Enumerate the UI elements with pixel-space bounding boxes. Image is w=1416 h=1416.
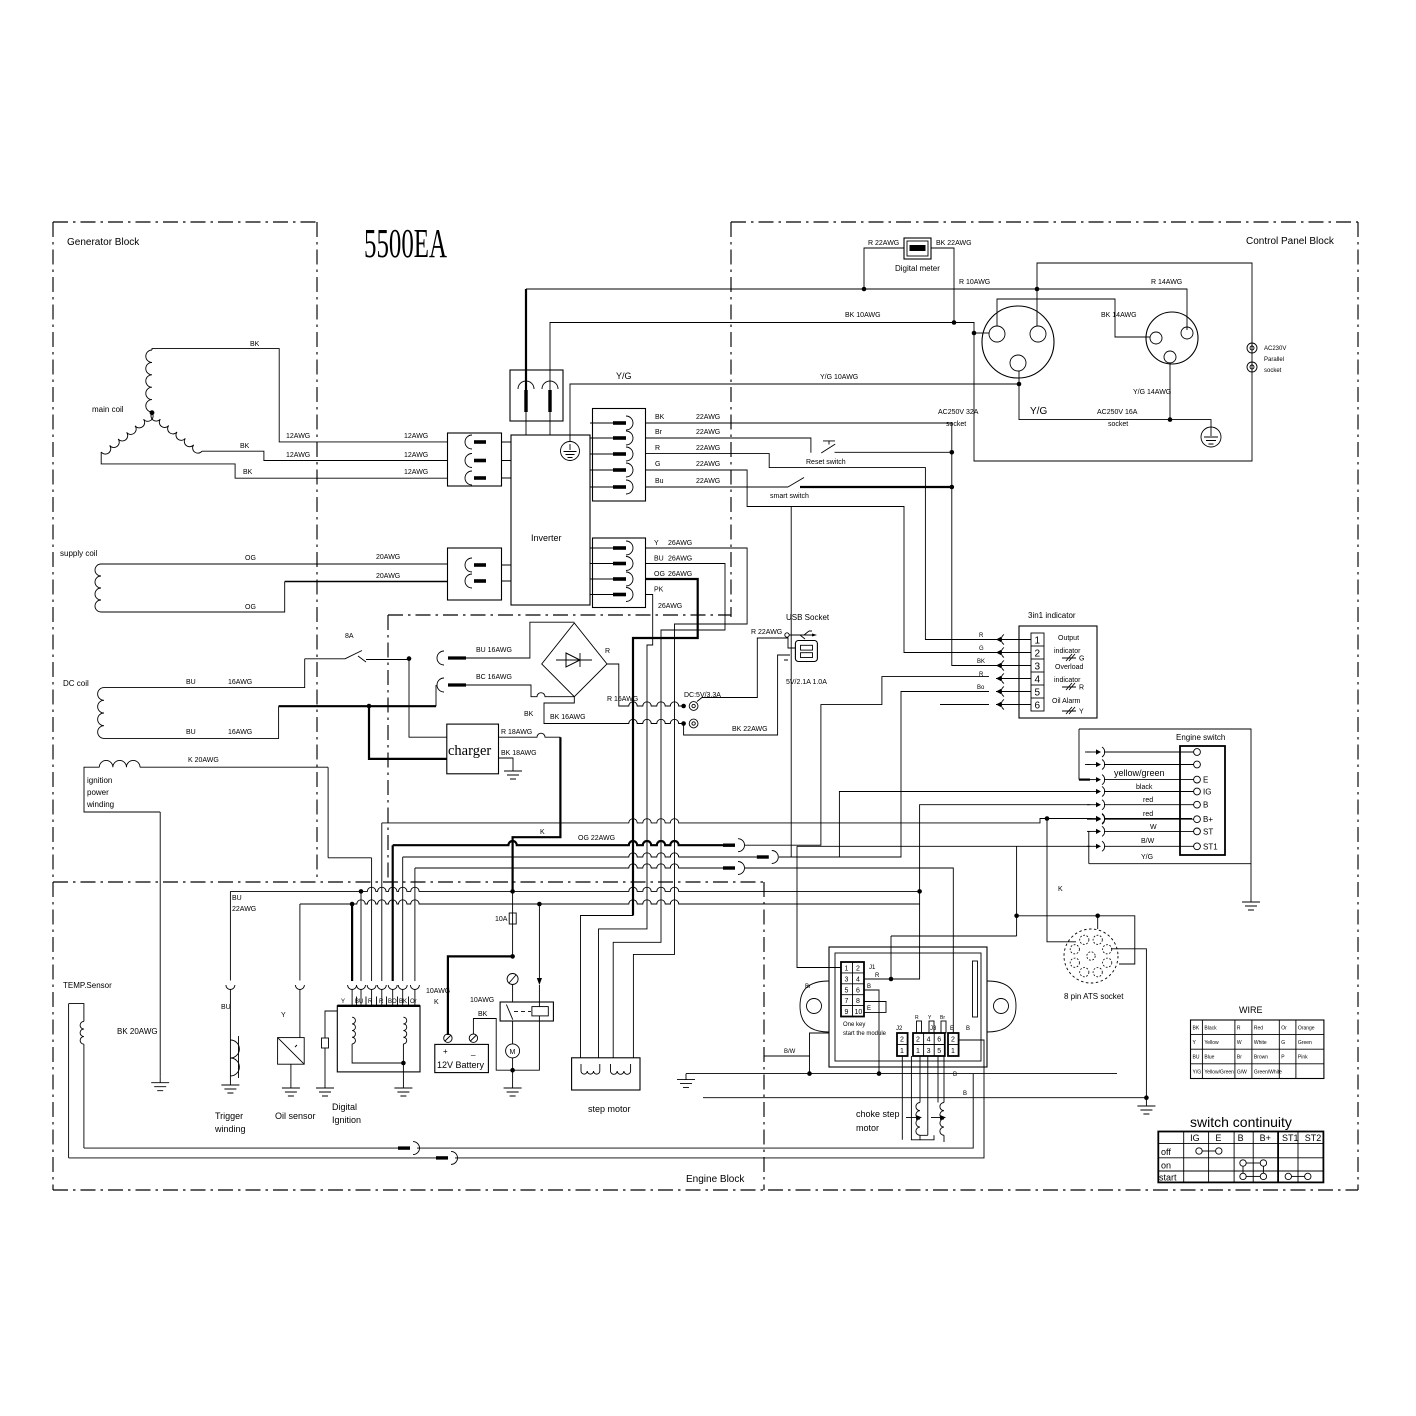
- svg-text:indicator: indicator: [1054, 648, 1081, 655]
- svg-text:R: R: [1237, 1026, 1241, 1032]
- svg-text:Bo: Bo: [977, 685, 985, 691]
- svg-text:R: R: [379, 999, 384, 1005]
- svg-text:Yellow: Yellow: [1204, 1040, 1219, 1046]
- svg-text:motor: motor: [856, 1123, 879, 1133]
- svg-text:BK: BK: [478, 1011, 488, 1018]
- svg-text:Reset switch: Reset switch: [806, 459, 846, 466]
- svg-text:BO: BO: [388, 999, 397, 1005]
- svg-text:BU: BU: [186, 679, 196, 686]
- svg-text:G: G: [1281, 1040, 1285, 1046]
- svg-text:Y: Y: [654, 540, 659, 547]
- svg-text:One key: One key: [843, 1022, 865, 1028]
- svg-text:BU: BU: [221, 1004, 231, 1011]
- svg-text:B+: B+: [1203, 815, 1213, 824]
- svg-text:Y/G: Y/G: [1030, 406, 1047, 417]
- svg-text:20AWG: 20AWG: [376, 573, 400, 580]
- svg-text:AC230V: AC230V: [1264, 346, 1286, 352]
- svg-text:_: _: [470, 1047, 476, 1056]
- svg-text:smart switch: smart switch: [770, 493, 809, 500]
- svg-text:PK: PK: [654, 587, 664, 594]
- svg-text:W: W: [1237, 1040, 1242, 1046]
- svg-text:Y: Y: [1079, 709, 1084, 716]
- svg-text:BK: BK: [524, 711, 534, 718]
- svg-text:Y/G: Y/G: [1141, 854, 1153, 861]
- svg-text:B: B: [867, 984, 871, 990]
- svg-text:winding: winding: [86, 800, 114, 809]
- svg-text:Engine switch: Engine switch: [1176, 733, 1225, 742]
- svg-text:3in1 indicator: 3in1 indicator: [1028, 611, 1076, 620]
- svg-text:BC 16AWG: BC 16AWG: [476, 674, 512, 681]
- svg-text:6: 6: [1035, 701, 1041, 712]
- svg-text:R: R: [1079, 685, 1084, 692]
- svg-text:B: B: [963, 1091, 967, 1097]
- svg-text:16AWG: 16AWG: [228, 729, 252, 736]
- svg-text:Bu: Bu: [655, 478, 664, 485]
- svg-text:Br: Br: [1237, 1055, 1242, 1061]
- svg-text:B: B: [1203, 801, 1208, 810]
- svg-text:12V Battery: 12V Battery: [437, 1060, 485, 1070]
- svg-text:BU: BU: [232, 895, 242, 902]
- svg-text:Br: Br: [940, 1015, 945, 1021]
- svg-text:E: E: [867, 1006, 871, 1012]
- svg-text:socket: socket: [946, 421, 966, 428]
- svg-text:G: G: [1079, 656, 1084, 663]
- svg-text:Y/G 14AWG: Y/G 14AWG: [1133, 389, 1171, 396]
- svg-text:12AWG: 12AWG: [404, 452, 428, 459]
- svg-text:M: M: [510, 1049, 516, 1056]
- svg-text:Black: Black: [1204, 1026, 1217, 1032]
- svg-text:E: E: [1203, 776, 1208, 785]
- svg-text:charger: charger: [448, 743, 491, 759]
- svg-text:R 16AWG: R 16AWG: [607, 696, 638, 703]
- svg-text:Digital meter: Digital meter: [895, 264, 940, 273]
- svg-text:Or: Or: [1281, 1026, 1287, 1032]
- svg-text:12AWG: 12AWG: [404, 433, 428, 440]
- svg-text:R: R: [605, 648, 610, 655]
- svg-text:3: 3: [927, 1048, 931, 1055]
- svg-text:10A: 10A: [495, 916, 508, 923]
- svg-text:IG: IG: [1203, 788, 1211, 797]
- svg-text:K: K: [434, 999, 439, 1006]
- svg-text:step motor: step motor: [588, 1104, 631, 1114]
- svg-text:Trigger: Trigger: [215, 1111, 243, 1121]
- svg-text:R 10AWG: R 10AWG: [959, 279, 990, 286]
- svg-text:BK 22AWG: BK 22AWG: [936, 240, 972, 247]
- svg-text:BU 16AWG: BU 16AWG: [476, 647, 512, 654]
- svg-text:BK: BK: [399, 999, 407, 1005]
- svg-text:White: White: [1254, 1040, 1267, 1046]
- svg-text:ST1: ST1: [1282, 1133, 1299, 1143]
- svg-text:8: 8: [856, 998, 860, 1005]
- svg-text:B: B: [1238, 1133, 1244, 1143]
- svg-text:DC coil: DC coil: [63, 679, 89, 688]
- svg-text:22AWG: 22AWG: [696, 445, 720, 452]
- svg-text:Parallel: Parallel: [1264, 357, 1284, 363]
- svg-text:main coil: main coil: [92, 405, 124, 414]
- svg-text:BK: BK: [977, 659, 985, 665]
- svg-text:Y/G 10AWG: Y/G 10AWG: [820, 374, 858, 381]
- svg-text:1: 1: [900, 1048, 904, 1055]
- svg-text:Pink: Pink: [1298, 1055, 1308, 1061]
- svg-text:5: 5: [937, 1048, 941, 1055]
- svg-text:OG: OG: [245, 555, 256, 562]
- svg-text:Red: Red: [1254, 1026, 1263, 1032]
- svg-text:Y: Y: [1193, 1040, 1197, 1046]
- svg-text:+: +: [443, 1047, 448, 1056]
- svg-text:BK: BK: [1193, 1026, 1200, 1032]
- svg-text:Green/White: Green/White: [1254, 1069, 1282, 1075]
- svg-text:on: on: [1161, 1161, 1171, 1171]
- svg-text:BK 18AWG: BK 18AWG: [501, 750, 537, 757]
- svg-text:R: R: [655, 445, 660, 452]
- svg-text:W: W: [1150, 824, 1157, 831]
- svg-text:Brown: Brown: [1254, 1055, 1268, 1061]
- svg-text:10: 10: [855, 1009, 863, 1016]
- svg-text:20AWG: 20AWG: [376, 554, 400, 561]
- svg-text:12AWG: 12AWG: [286, 433, 310, 440]
- svg-text:R: R: [368, 999, 373, 1005]
- svg-text:Br: Br: [655, 429, 663, 436]
- svg-text:Digital: Digital: [332, 1102, 357, 1112]
- svg-text:Yellow/Green: Yellow/Green: [1204, 1069, 1234, 1075]
- svg-text:red: red: [1143, 797, 1153, 804]
- svg-text:Y/G: Y/G: [1193, 1069, 1202, 1075]
- svg-text:socket: socket: [1108, 421, 1128, 428]
- svg-text:4: 4: [927, 1037, 931, 1044]
- svg-text:Engine Block: Engine Block: [686, 1174, 745, 1185]
- svg-text:22AWG: 22AWG: [232, 906, 256, 913]
- svg-text:R: R: [915, 1015, 919, 1021]
- svg-text:TEMP.Sensor: TEMP.Sensor: [63, 981, 112, 990]
- svg-text:2: 2: [1035, 649, 1041, 660]
- svg-text:ST: ST: [1203, 827, 1213, 836]
- svg-text:10AWG: 10AWG: [470, 997, 494, 1004]
- svg-text:BU: BU: [1193, 1055, 1200, 1061]
- svg-text:B: B: [966, 1026, 970, 1032]
- svg-text:5V/2.1A 1.0A: 5V/2.1A 1.0A: [786, 679, 827, 686]
- svg-text:J3: J3: [930, 1026, 937, 1032]
- svg-text:R: R: [875, 973, 880, 979]
- svg-text:G/W: G/W: [1237, 1069, 1247, 1075]
- svg-text:OG: OG: [245, 604, 256, 611]
- svg-text:3: 3: [1035, 662, 1041, 673]
- svg-text:5: 5: [1035, 688, 1041, 699]
- svg-text:8 pin ATS socket: 8 pin ATS socket: [1064, 992, 1124, 1001]
- svg-text:Br: Br: [805, 984, 811, 990]
- svg-text:start the module: start the module: [843, 1031, 887, 1037]
- svg-text:4: 4: [1035, 675, 1041, 686]
- svg-text:BK 16AWG: BK 16AWG: [550, 714, 586, 721]
- svg-text:black: black: [1136, 784, 1153, 791]
- svg-text:indicator: indicator: [1054, 677, 1081, 684]
- svg-text:5: 5: [845, 987, 849, 994]
- svg-text:R 14AWG: R 14AWG: [1151, 279, 1182, 286]
- svg-text:Blue: Blue: [1204, 1055, 1214, 1061]
- svg-text:26AWG: 26AWG: [658, 603, 682, 610]
- svg-text:Green: Green: [1298, 1040, 1312, 1046]
- svg-text:12AWG: 12AWG: [404, 469, 428, 476]
- svg-text:B/W: B/W: [784, 1049, 796, 1055]
- svg-text:B: B: [953, 1072, 957, 1078]
- svg-text:J2: J2: [896, 1026, 903, 1032]
- svg-text:ST2: ST2: [1305, 1133, 1322, 1143]
- svg-text:R 18AWG: R 18AWG: [501, 729, 532, 736]
- svg-text:IG: IG: [1190, 1133, 1200, 1143]
- svg-text:1: 1: [845, 966, 849, 973]
- svg-text:E: E: [950, 1026, 954, 1032]
- svg-text:B/W: B/W: [1141, 838, 1155, 845]
- svg-text:22AWG: 22AWG: [696, 461, 720, 468]
- svg-text:6: 6: [856, 987, 860, 994]
- svg-text:3: 3: [845, 976, 849, 983]
- svg-text:Generator Block: Generator Block: [67, 237, 140, 248]
- svg-text:red: red: [1143, 811, 1153, 818]
- svg-text:K: K: [1058, 886, 1063, 893]
- svg-text:26AWG: 26AWG: [668, 540, 692, 547]
- svg-text:J1: J1: [869, 965, 876, 971]
- svg-text:Y: Y: [928, 1015, 932, 1021]
- svg-text:off: off: [1161, 1147, 1171, 1157]
- svg-text:Overload: Overload: [1055, 664, 1084, 671]
- svg-text:E: E: [1215, 1133, 1221, 1143]
- svg-text:power: power: [87, 788, 109, 797]
- svg-text:Control Panel Block: Control Panel Block: [1246, 236, 1335, 247]
- svg-text:12AWG: 12AWG: [286, 452, 310, 459]
- svg-text:Ignition: Ignition: [332, 1115, 361, 1125]
- svg-text:start: start: [1159, 1173, 1177, 1183]
- svg-text:K 20AWG: K 20AWG: [188, 757, 219, 764]
- svg-text:R 22AWG: R 22AWG: [751, 629, 782, 636]
- svg-text:yellow/green: yellow/green: [1114, 768, 1165, 778]
- svg-text:Orange: Orange: [1298, 1026, 1315, 1032]
- svg-text:1: 1: [1035, 636, 1041, 647]
- svg-text:winding: winding: [214, 1124, 246, 1134]
- svg-text:ignition: ignition: [87, 776, 112, 785]
- svg-text:4: 4: [856, 976, 860, 983]
- svg-text:Y: Y: [281, 1012, 286, 1019]
- svg-text:6: 6: [937, 1037, 941, 1044]
- svg-text:1: 1: [916, 1048, 920, 1055]
- svg-text:BK: BK: [250, 341, 260, 348]
- svg-text:2: 2: [900, 1037, 904, 1044]
- svg-text:BK 10AWG: BK 10AWG: [845, 312, 881, 319]
- svg-text:7: 7: [845, 998, 849, 1005]
- svg-text:1: 1: [951, 1048, 955, 1055]
- svg-text:5500EA: 5500EA: [364, 220, 447, 266]
- svg-text:Oil sensor: Oil sensor: [275, 1111, 316, 1121]
- svg-text:2: 2: [951, 1037, 955, 1044]
- svg-text:Or: Or: [410, 999, 417, 1005]
- svg-text:R 22AWG: R 22AWG: [868, 240, 899, 247]
- svg-text:BU: BU: [186, 729, 196, 736]
- svg-text:BK 22AWG: BK 22AWG: [732, 726, 768, 733]
- svg-text:USB Socket: USB Socket: [786, 613, 830, 622]
- svg-text:ST1: ST1: [1203, 842, 1218, 851]
- svg-text:OG 22AWG: OG 22AWG: [578, 835, 615, 842]
- svg-text:switch continuity: switch continuity: [1190, 1114, 1292, 1130]
- svg-text:OG: OG: [654, 571, 665, 578]
- svg-text:BK 20AWG: BK 20AWG: [117, 1027, 158, 1036]
- svg-text:Inverter: Inverter: [531, 533, 562, 543]
- svg-text:BK 14AWG: BK 14AWG: [1101, 312, 1137, 319]
- svg-text:AC250V 32A: AC250V 32A: [938, 409, 979, 416]
- svg-text:Output: Output: [1058, 635, 1079, 642]
- svg-text:B+: B+: [1260, 1133, 1271, 1143]
- svg-text:Y: Y: [341, 999, 345, 1005]
- svg-text:BK: BK: [240, 443, 250, 450]
- svg-text:BK: BK: [655, 414, 665, 421]
- svg-text:R: R: [979, 633, 984, 639]
- svg-text:22AWG: 22AWG: [696, 478, 720, 485]
- svg-text:socket: socket: [1264, 368, 1282, 374]
- svg-text:G: G: [655, 461, 660, 468]
- svg-text:10AWG: 10AWG: [426, 988, 450, 995]
- svg-text:AC250V 16A: AC250V 16A: [1097, 409, 1138, 416]
- svg-text:R: R: [979, 672, 984, 678]
- svg-text:16AWG: 16AWG: [228, 679, 252, 686]
- svg-text:8A: 8A: [345, 633, 354, 640]
- svg-text:K: K: [540, 829, 545, 836]
- svg-text:Y/G: Y/G: [616, 371, 632, 381]
- svg-text:2: 2: [856, 966, 860, 973]
- svg-text:G: G: [979, 646, 984, 652]
- svg-text:26AWG: 26AWG: [668, 571, 692, 578]
- svg-text:BU: BU: [654, 556, 664, 563]
- svg-text:Oil Alarm: Oil Alarm: [1052, 698, 1081, 705]
- svg-text:22AWG: 22AWG: [696, 414, 720, 421]
- svg-text:22AWG: 22AWG: [696, 429, 720, 436]
- svg-text:WIRE: WIRE: [1239, 1005, 1263, 1015]
- svg-text:P: P: [1281, 1055, 1285, 1061]
- svg-text:9: 9: [845, 1009, 849, 1016]
- svg-text:choke step: choke step: [856, 1109, 900, 1119]
- svg-text:BK: BK: [243, 469, 253, 476]
- svg-text:2: 2: [916, 1037, 920, 1044]
- svg-text:26AWG: 26AWG: [668, 556, 692, 563]
- svg-text:supply coil: supply coil: [60, 549, 98, 558]
